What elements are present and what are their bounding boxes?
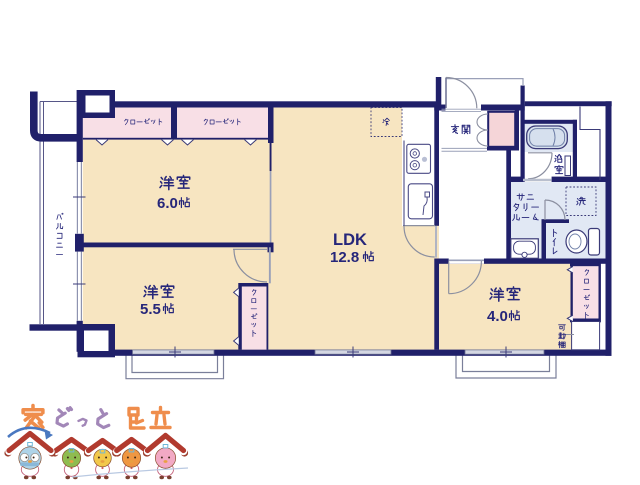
svg-text:12.8: 12.8 [330,249,359,266]
svg-text:LDK: LDK [333,231,367,249]
svg-text:6.0: 6.0 [157,195,178,212]
svg-text:5.5: 5.5 [140,301,161,318]
svg-text:4.0: 4.0 [487,308,508,325]
